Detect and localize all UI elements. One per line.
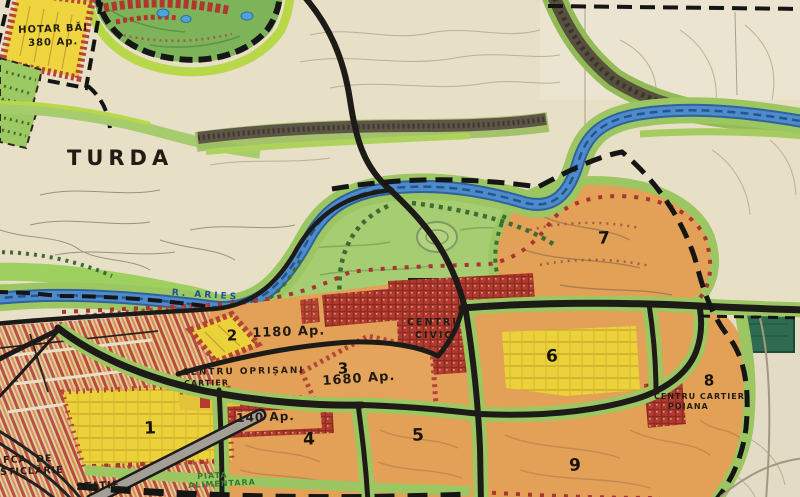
centru-poiana-label-1: CENTRU CARTIER xyxy=(654,393,745,401)
zone-6-number: 6 xyxy=(546,348,558,365)
centru-poiana-label-2: POIANA xyxy=(668,403,709,411)
city-label: TURDA xyxy=(67,148,173,169)
map-canvas xyxy=(0,0,800,497)
zone6-yellow xyxy=(502,326,640,396)
centru-civic-label-2: CIVIC xyxy=(415,331,453,341)
zone-9-number: 9 xyxy=(569,457,581,474)
zone-5-number: 5 xyxy=(412,427,424,444)
zone-2-number: 2 xyxy=(227,328,238,343)
centru-oprisani-label-2: CARTIER xyxy=(184,379,229,388)
zone-1-number: 1 xyxy=(144,420,156,437)
zone-4-apartments: 140 Ap. xyxy=(236,410,295,424)
hotar-zone-apartments: 380 Ap. xyxy=(28,37,78,49)
map-stage: HOTAR BĂI 380 Ap. TURDA R. ARIEȘ 1 2 3 4… xyxy=(0,0,800,497)
centru-civic-label-1: CENTRU xyxy=(407,318,462,328)
zone-4-number: 4 xyxy=(303,431,315,448)
zone-2-apartments: 1180 Ap. xyxy=(252,324,325,340)
glass-factory-label-2: STICLĂRIE xyxy=(0,466,64,478)
zone-7-number: 7 xyxy=(598,230,610,247)
zone-8-number: 8 xyxy=(704,373,715,388)
glass-factory-label-1: FCA. DE xyxy=(3,454,53,465)
